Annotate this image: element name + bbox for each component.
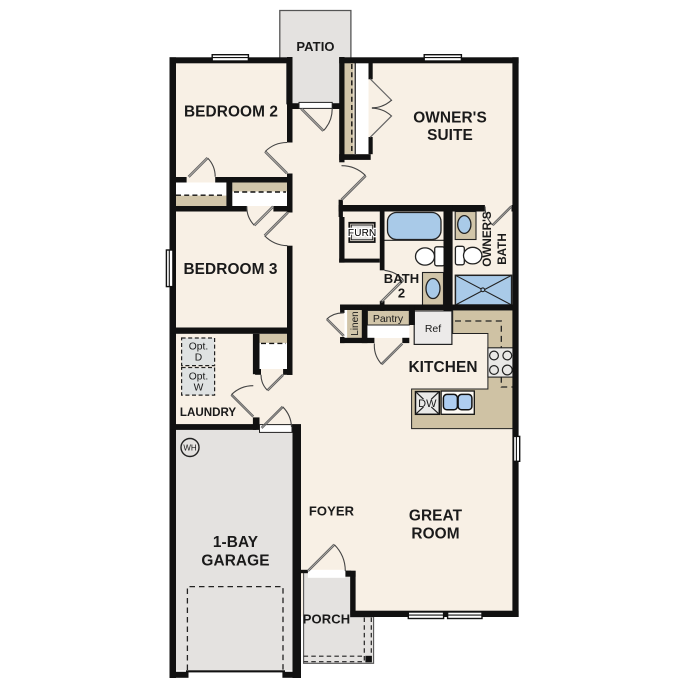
- svg-text:BATH: BATH: [384, 271, 420, 286]
- svg-text:BEDROOM 2: BEDROOM 2: [184, 104, 278, 121]
- svg-text:PORCH: PORCH: [303, 612, 350, 627]
- svg-text:Pantry: Pantry: [373, 313, 404, 325]
- svg-text:Opt.: Opt.: [189, 342, 208, 353]
- svg-text:OWNER'S: OWNER'S: [481, 211, 494, 267]
- svg-text:WH: WH: [183, 444, 197, 453]
- svg-text:2: 2: [398, 285, 405, 300]
- svg-text:Ref: Ref: [425, 323, 441, 335]
- svg-text:PATIO: PATIO: [296, 39, 334, 54]
- svg-text:DW: DW: [418, 398, 437, 410]
- svg-text:BATH: BATH: [496, 233, 509, 265]
- svg-text:OWNER'S: OWNER'S: [413, 110, 487, 127]
- svg-text:ROOM: ROOM: [411, 526, 459, 543]
- svg-text:BEDROOM 3: BEDROOM 3: [183, 261, 277, 278]
- svg-text:FOYER: FOYER: [309, 504, 355, 519]
- svg-text:1-BAY: 1-BAY: [213, 534, 259, 551]
- svg-text:Linen: Linen: [350, 311, 361, 335]
- svg-text:W: W: [194, 383, 204, 394]
- svg-text:Opt.: Opt.: [189, 372, 208, 383]
- svg-text:SUITE: SUITE: [427, 127, 473, 144]
- svg-text:FURN: FURN: [348, 228, 377, 239]
- svg-text:GREAT: GREAT: [409, 508, 463, 525]
- svg-text:LAUNDRY: LAUNDRY: [180, 406, 237, 419]
- svg-text:GARAGE: GARAGE: [201, 553, 269, 570]
- svg-text:D: D: [195, 353, 202, 364]
- svg-text:KITCHEN: KITCHEN: [408, 359, 477, 376]
